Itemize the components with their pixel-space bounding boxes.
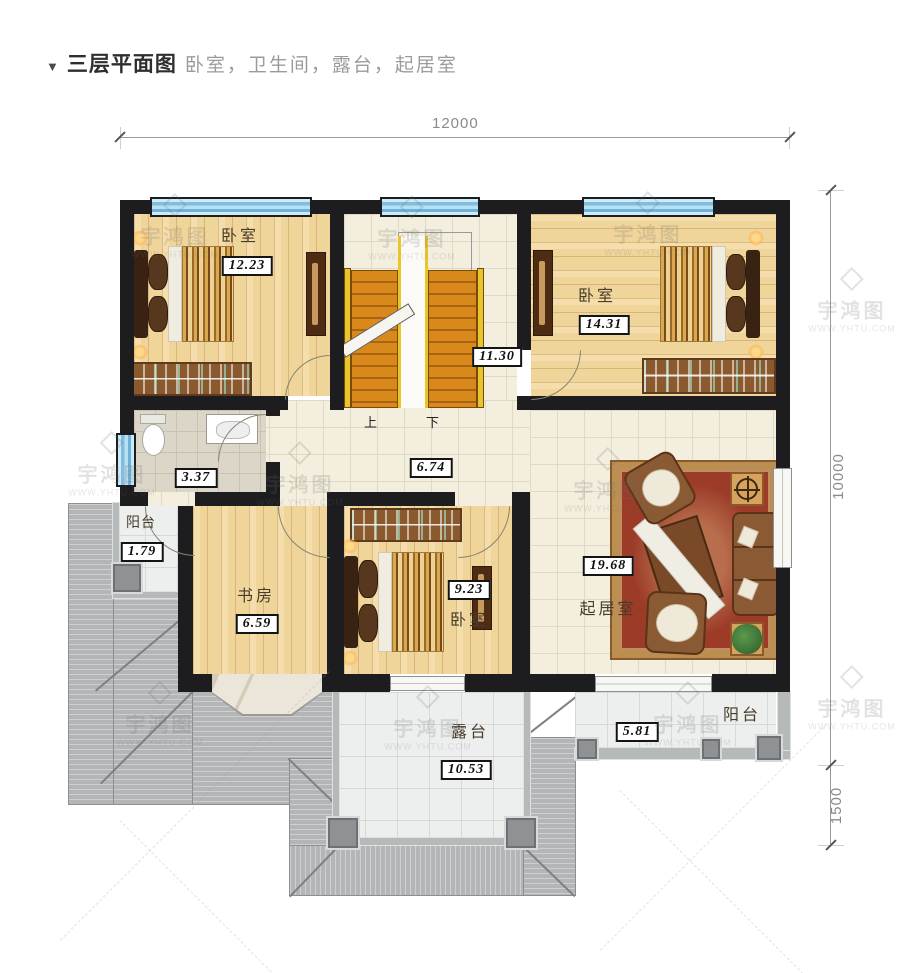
sliding-door-living <box>595 676 712 692</box>
area-study: 6.59 <box>236 614 279 634</box>
area-bedroom-top-left: 12.23 <box>222 256 273 276</box>
window-bathroom <box>116 433 136 487</box>
lamp-glow <box>132 344 148 360</box>
window-living-right <box>773 468 792 568</box>
wardrobe <box>130 362 252 396</box>
area-hallway: 6.74 <box>410 458 453 478</box>
wall-segment <box>512 492 530 692</box>
room-label-balcony-right: 阳台 <box>723 701 761 725</box>
balcony-right-pillar <box>577 739 597 759</box>
section-header[interactable]: ▼ 三层平面图 卧室，卫生间，露台，起居室 <box>46 48 458 78</box>
roof-left-band <box>68 503 114 805</box>
wall-segment <box>465 674 530 692</box>
dresser <box>533 250 553 336</box>
stair-flight-down <box>428 270 477 408</box>
terrace-pillar <box>328 818 358 848</box>
wall-segment <box>517 200 531 350</box>
lamp-glow <box>342 650 358 666</box>
wall-segment <box>322 674 390 692</box>
room-label-bedroom-top-right: 卧室 <box>578 282 616 306</box>
wall-segment <box>344 492 455 506</box>
area-terrace: 10.53 <box>441 760 492 780</box>
dim-main-depth: 10000 <box>830 453 847 500</box>
area-bedroom-middle: 9.23 <box>448 580 491 600</box>
dim-porch-depth: 1500 <box>828 787 845 824</box>
watermark-logo-icon <box>840 665 864 689</box>
wall-segment <box>178 674 212 692</box>
room-label-terrace: 露台 <box>451 718 489 742</box>
dashed-guide-line <box>619 790 832 973</box>
wall-segment <box>530 674 595 692</box>
window-bedroom-middle <box>390 676 465 691</box>
watermark: 宇鸿图 WWW.YHTU.COM <box>808 669 896 732</box>
room-label-balcony-left: 阳台 <box>126 512 156 532</box>
wall-segment <box>266 410 280 416</box>
compass-icon <box>736 478 758 500</box>
stair-down-label: 下 <box>426 412 439 431</box>
stair-rail <box>344 268 351 408</box>
wall-segment <box>195 492 278 506</box>
balcony-left-pillar <box>113 564 141 592</box>
room-label-living-room: 起居室 <box>579 595 636 619</box>
wall-segment <box>517 396 790 410</box>
watermark: 宇鸿图 WWW.YHTU.COM <box>808 271 896 334</box>
dim-line-top <box>120 137 790 138</box>
terrace-floor <box>333 692 530 845</box>
area-bedroom-top-right: 14.31 <box>579 315 630 335</box>
wardrobe <box>350 508 462 542</box>
toilet <box>140 414 166 424</box>
area-bathroom: 3.37 <box>175 468 218 488</box>
lamp-glow <box>132 230 148 246</box>
floorplan-page: ▼ 三层平面图 卧室，卫生间，露台，起居室 12000 10000 1500 <box>0 0 910 973</box>
watermark-logo-icon <box>840 267 864 291</box>
toilet <box>142 424 165 456</box>
window-stairwell <box>380 197 480 217</box>
dim-total-width: 12000 <box>432 115 479 132</box>
lamp-glow <box>342 538 358 554</box>
dresser <box>306 252 326 336</box>
wall-segment <box>120 396 288 410</box>
wall-segment <box>776 200 790 692</box>
collapse-triangle-icon: ▼ <box>46 59 59 74</box>
room-label-bedroom-middle: 卧室 <box>450 606 488 630</box>
area-stair-hall: 11.30 <box>472 347 522 367</box>
plant <box>732 624 762 654</box>
wall-segment <box>712 674 790 692</box>
terrace-pillar <box>506 818 536 848</box>
room-label-study: 书房 <box>237 582 275 606</box>
room-label-bedroom-top-left: 卧室 <box>221 222 259 246</box>
stair-rail <box>477 268 484 408</box>
page-title: 三层平面图 <box>67 48 177 78</box>
lamp-glow <box>748 230 764 246</box>
wall-segment <box>120 492 148 506</box>
balcony-right-pillar <box>702 739 720 759</box>
armchair <box>644 590 707 655</box>
wardrobe <box>642 358 776 394</box>
page-subtitle: 卧室，卫生间，露台，起居室 <box>185 50 458 77</box>
window-bedroom-top-right <box>582 197 715 217</box>
porch-hip-line <box>523 693 581 739</box>
area-living-room: 19.68 <box>583 556 634 576</box>
area-balcony-right: 5.81 <box>616 722 659 742</box>
stair-up-label: 上 <box>364 412 377 431</box>
wall-segment <box>330 200 344 410</box>
window-bedroom-top-left <box>150 197 312 217</box>
balcony-right-pillar <box>757 736 781 760</box>
terrace-rail <box>333 838 530 845</box>
area-balcony-left: 1.79 <box>121 542 164 562</box>
